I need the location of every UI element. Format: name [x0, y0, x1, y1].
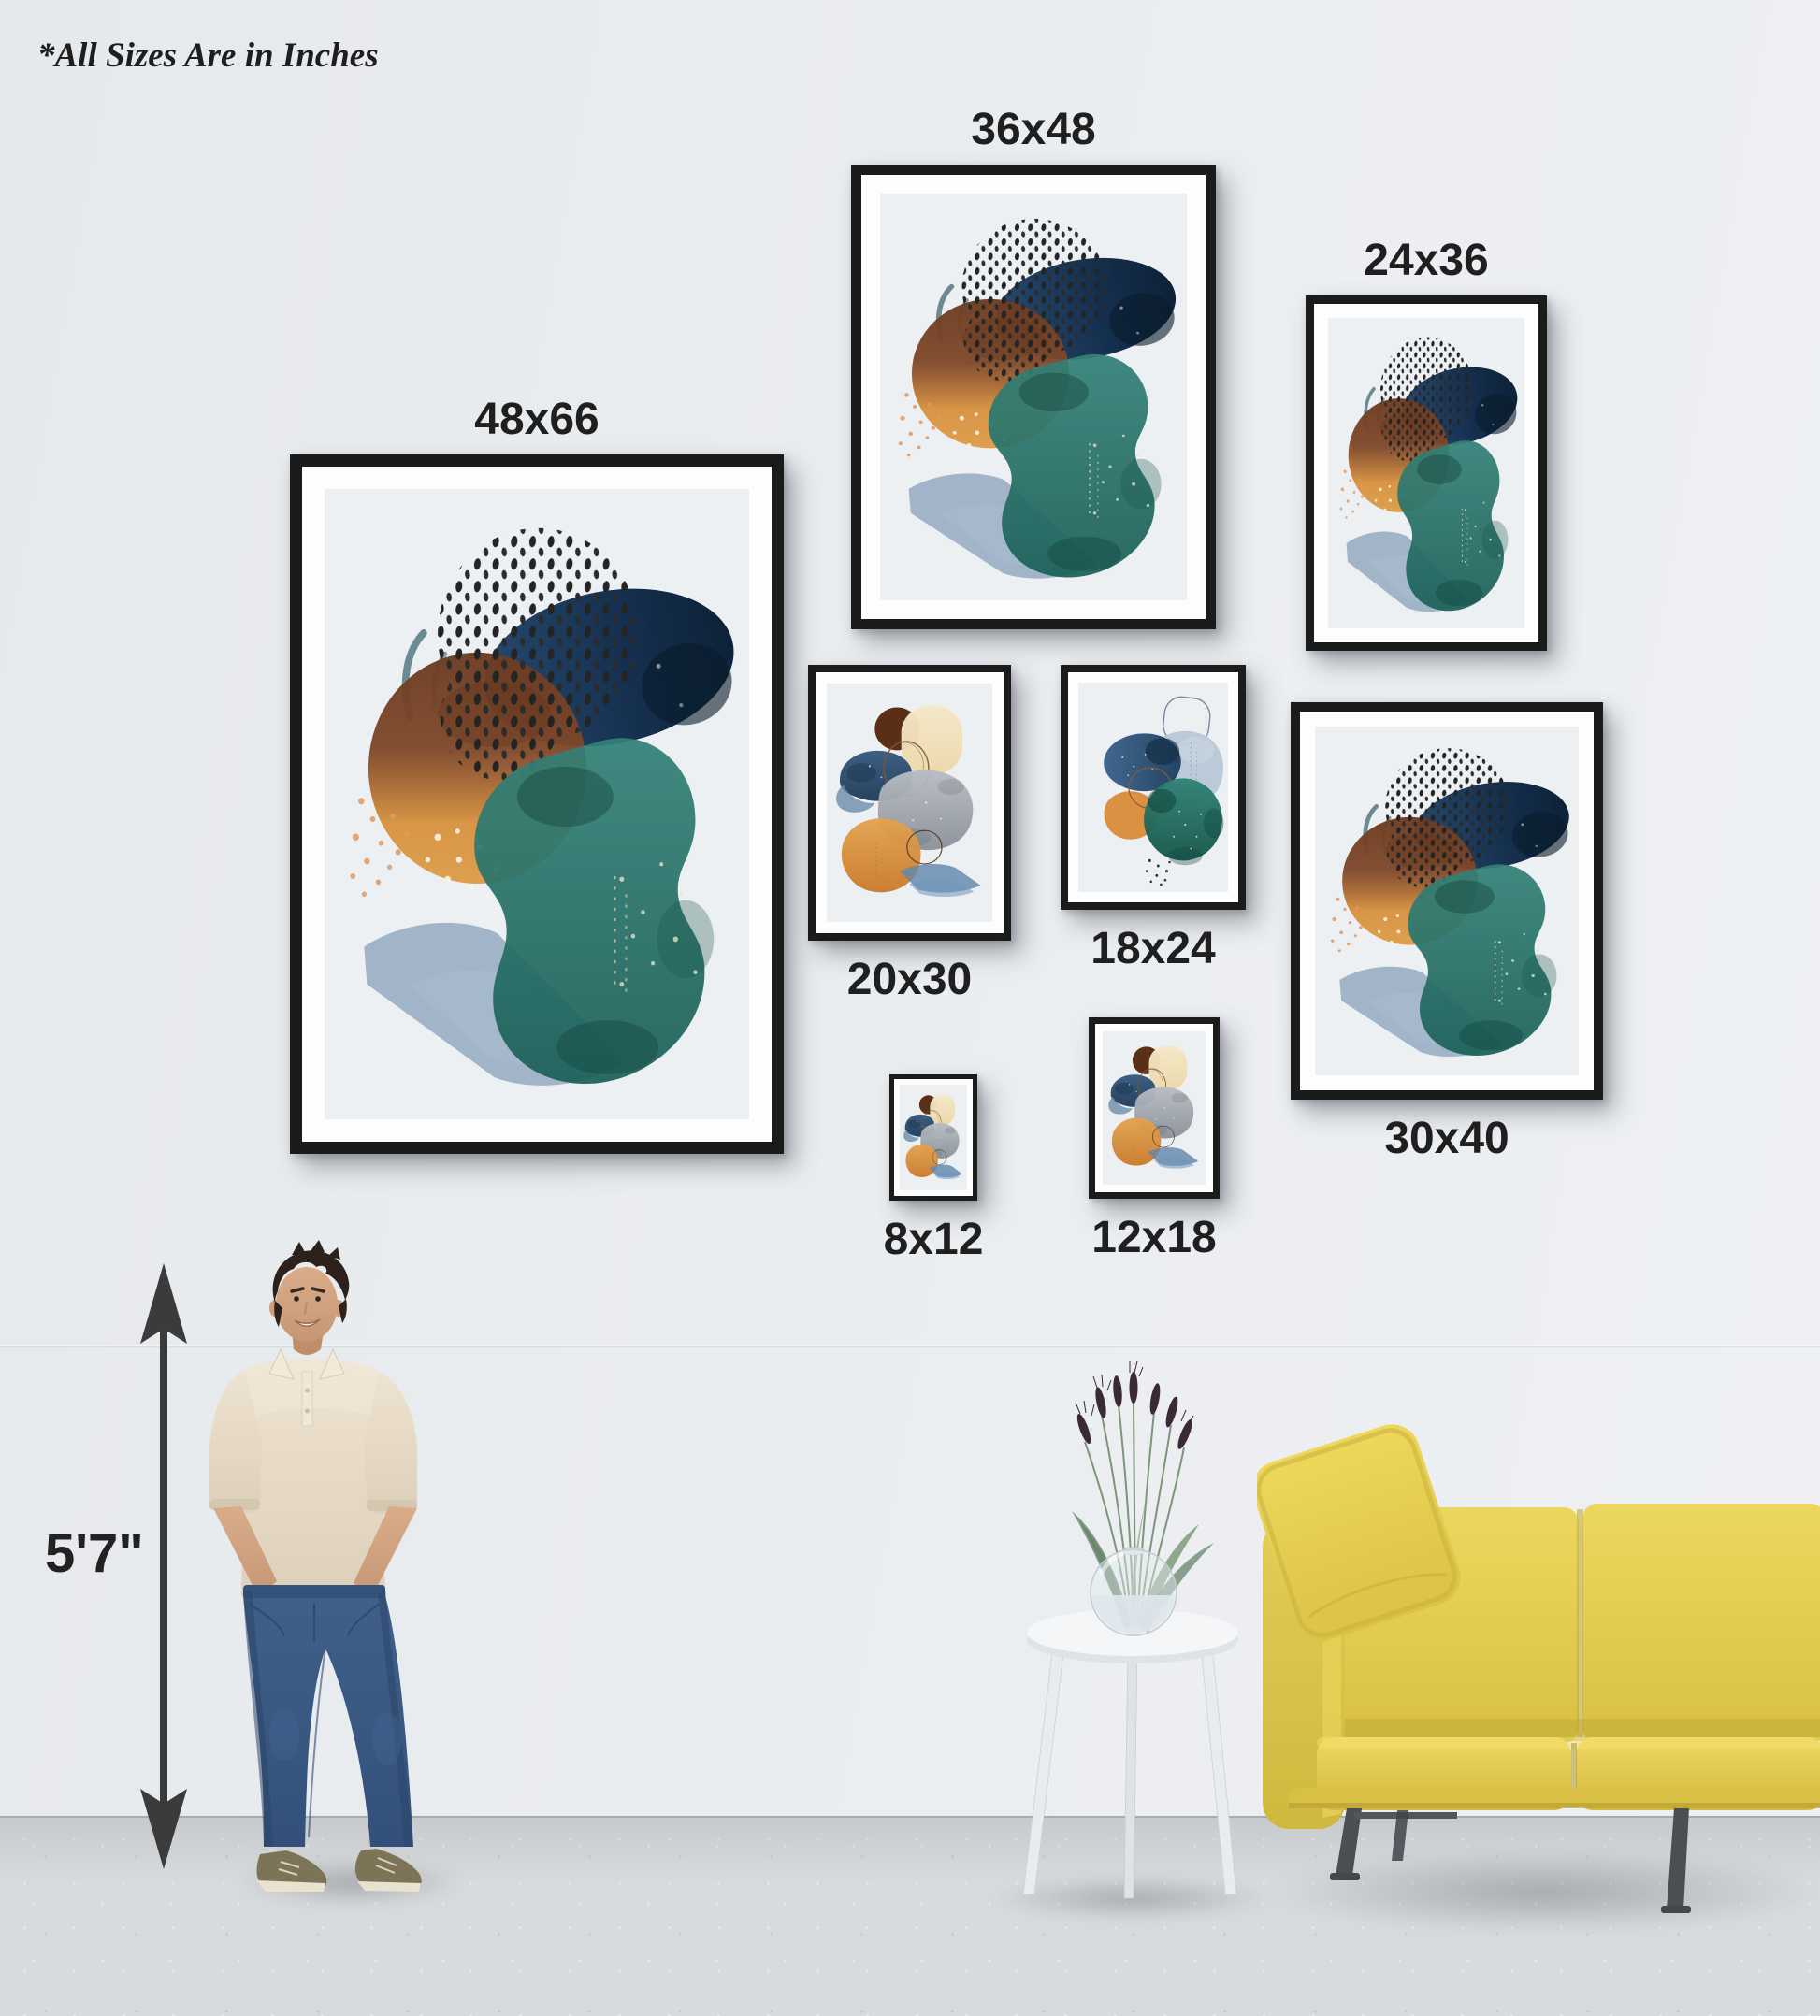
frame-label-24x36: 24x36	[1364, 235, 1488, 286]
man-figure	[187, 1230, 486, 1912]
artwork-18x24	[1078, 683, 1228, 892]
frame-label-30x40: 30x40	[1384, 1113, 1509, 1164]
frame-12x18: 12x18	[1089, 1017, 1220, 1199]
frame-24x36: 24x36	[1306, 295, 1547, 651]
artwork-36x48	[880, 194, 1187, 600]
frame-label-18x24: 18x24	[1091, 923, 1215, 974]
frame-8x12: 8x12	[889, 1074, 977, 1201]
artwork-48x66	[325, 489, 749, 1119]
artwork-8x12	[900, 1085, 967, 1190]
frame-label-48x66: 48x66	[474, 394, 599, 445]
size-note: *All Sizes Are in Inches	[37, 36, 379, 76]
side-table	[991, 1356, 1272, 1917]
poster-size-guide-scene: *All Sizes Are in Inches 48x66 36x48 24x…	[0, 0, 1820, 2016]
artwork-24x36	[1328, 318, 1524, 628]
frame-label-8x12: 8x12	[884, 1214, 984, 1265]
sofa	[1257, 1421, 1820, 1954]
frame-label-12x18: 12x18	[1091, 1212, 1216, 1263]
artwork-20x30	[827, 684, 992, 922]
height-label: 5'7"	[45, 1522, 144, 1585]
frame-label-20x30: 20x30	[847, 954, 972, 1005]
artwork-30x40	[1315, 727, 1579, 1075]
frame-30x40: 30x40	[1291, 702, 1603, 1100]
frame-36x48: 36x48	[851, 165, 1216, 629]
frame-20x30: 20x30	[808, 665, 1011, 941]
frame-label-36x48: 36x48	[971, 104, 1095, 155]
frame-48x66: 48x66	[290, 454, 784, 1154]
frame-18x24: 18x24	[1061, 665, 1246, 910]
artwork-12x18	[1103, 1031, 1206, 1185]
